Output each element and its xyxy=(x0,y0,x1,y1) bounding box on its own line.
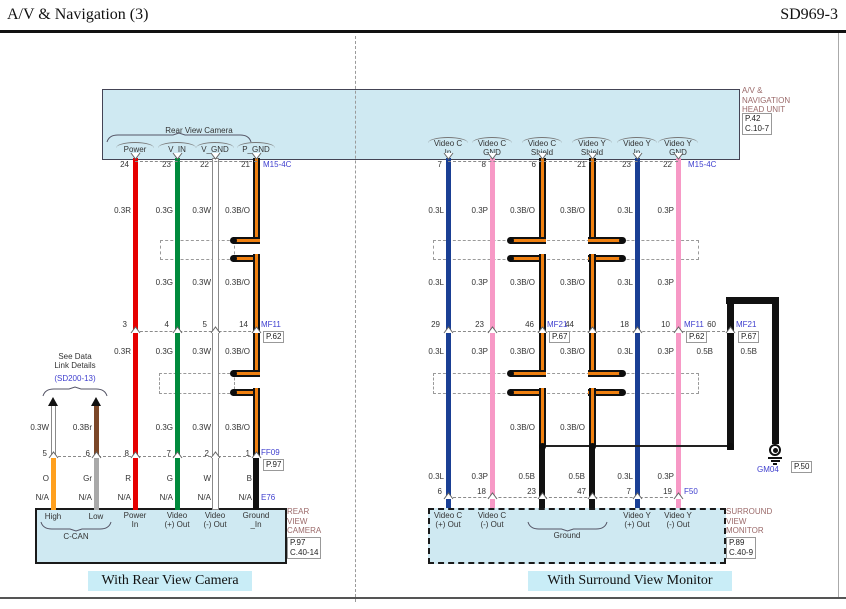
wire-size-label: 0.3B/O xyxy=(510,278,535,287)
connector-chevron-icon xyxy=(673,326,684,333)
data-link-brace xyxy=(42,387,108,397)
wire-size-label: 0.3P xyxy=(658,206,674,215)
connector-ref: P.97 xyxy=(263,459,284,471)
rear-camera-ref: P.97 C.40-14 xyxy=(287,537,321,559)
wire-size-label: 0.3L xyxy=(428,347,444,356)
ground-brace xyxy=(527,522,608,532)
shielded-wire xyxy=(510,370,546,377)
wire-color-label: B xyxy=(247,474,252,483)
wire-size-label: 0.3R xyxy=(114,347,131,356)
label-arc xyxy=(522,137,562,143)
camera-pin-label: High xyxy=(45,512,61,521)
can-high-wire-white xyxy=(51,404,56,458)
connector-chevron-icon xyxy=(632,492,643,499)
connector-chevron-icon xyxy=(487,492,498,499)
connector-name: M15-4C xyxy=(263,160,291,169)
connector-chevron-icon xyxy=(587,326,598,333)
junction-dot xyxy=(230,389,237,396)
wire-size-label: 0.3G xyxy=(156,347,173,356)
connector-name: MF21 xyxy=(547,320,567,329)
wire-size-label: 0.3W xyxy=(192,278,211,287)
connector-chevron-icon xyxy=(210,326,221,333)
label-arc xyxy=(237,142,275,148)
wire-color-label: O xyxy=(43,474,49,483)
label-arc xyxy=(617,137,657,143)
wire-size-label: 0.3B/O xyxy=(225,206,250,215)
connector-chevron-icon xyxy=(48,451,59,458)
pin-number: 5 xyxy=(203,320,207,329)
head-unit-ref: P.42 C.10-7 xyxy=(742,113,772,135)
pin-number: 60 xyxy=(707,320,716,329)
na-label: N/A xyxy=(239,493,252,502)
junction-dot xyxy=(727,443,734,450)
junction-dot xyxy=(507,389,514,396)
connector-name: M15-4C xyxy=(688,160,716,169)
ground-bus-right-leg xyxy=(772,297,779,444)
wire-color-label: G xyxy=(167,474,173,483)
pin-number: 7 xyxy=(438,160,442,169)
camera-pin-label: Power In xyxy=(124,512,147,529)
pin-number: 3 xyxy=(123,320,127,329)
camera-pin-label: Video (-) Out xyxy=(203,512,226,529)
wire-size-label: 0.3L xyxy=(428,472,444,481)
connector-chevron-icon xyxy=(210,451,221,458)
shielded-wire xyxy=(253,388,260,458)
connector-chevron-icon xyxy=(537,492,548,499)
junction-dot xyxy=(619,389,626,396)
pin-number: 46 xyxy=(525,320,534,329)
junction-dot xyxy=(230,255,237,262)
connector-chevron-icon xyxy=(443,492,454,499)
junction-dot xyxy=(230,370,237,377)
wire-size-label: 0.3G xyxy=(156,423,173,432)
connector-chevron-icon xyxy=(172,451,183,458)
wire-size-label: 0.3L xyxy=(617,206,633,215)
wire-size-label: 0.3G xyxy=(156,206,173,215)
junction-dot xyxy=(619,255,626,262)
pin-number: 23 xyxy=(527,487,536,496)
label-arc xyxy=(472,137,512,143)
wire-size-label: 0.3P xyxy=(472,347,488,356)
connector-chevron-icon xyxy=(130,153,141,160)
shield-junction-box xyxy=(433,373,699,394)
label-arc xyxy=(658,137,698,143)
connector-name: MF11 xyxy=(261,320,281,329)
connector-chevron-icon xyxy=(443,326,454,333)
wire-size-label: 0.3G xyxy=(156,278,173,287)
wire-size-label: 0.3B/O xyxy=(560,423,585,432)
wire-size-label: 0.5B xyxy=(569,472,585,481)
connector-chevron-icon xyxy=(172,153,183,160)
caption-right: With Surround View Monitor xyxy=(528,571,732,591)
connector-dash-line xyxy=(448,161,678,162)
shielded-wire xyxy=(233,370,260,377)
pin-number: 23 xyxy=(475,320,484,329)
connector-chevron-icon xyxy=(587,153,598,160)
connector-chevron-icon xyxy=(632,326,643,333)
wire-size-label: 0.3P xyxy=(472,278,488,287)
shielded-wire xyxy=(539,254,546,377)
label-arc xyxy=(158,142,196,148)
connector-chevron-icon xyxy=(487,326,498,333)
connector-chevron-icon xyxy=(673,153,684,160)
wire-size-label: 0.3P xyxy=(472,206,488,215)
pin-number: 10 xyxy=(661,320,670,329)
label-arc xyxy=(572,137,612,143)
monitor-pin-label: Video C (-) Out xyxy=(478,512,506,529)
wire-size-label: 0.3B/O xyxy=(225,278,250,287)
pin-number: 24 xyxy=(120,160,129,169)
can-low-wire-gray xyxy=(94,458,99,510)
connector-chevron-icon xyxy=(251,326,262,333)
shielded-wire xyxy=(589,388,596,447)
connector-dash-line xyxy=(448,497,678,498)
label-arc xyxy=(116,142,154,148)
c-can-brace xyxy=(40,522,112,532)
connector-chevron-icon xyxy=(537,153,548,160)
camera-pin-label: Low xyxy=(89,512,104,521)
shielded-wire xyxy=(539,158,546,244)
data-link-note: See Data Link Details xyxy=(54,352,95,370)
na-label: N/A xyxy=(118,493,131,502)
connector-chevron-icon xyxy=(172,326,183,333)
wire-size-label: 0.3Br xyxy=(73,423,92,432)
wire-size-label: 0.3B/O xyxy=(510,347,535,356)
ground-symbol-dot xyxy=(773,448,778,453)
monitor-pin-label: Video Y (+) Out xyxy=(623,512,651,529)
shield-junction-box xyxy=(433,240,699,260)
wire-color-label: W xyxy=(203,474,211,483)
connector-chevron-icon xyxy=(251,153,262,160)
pin-number: 18 xyxy=(620,320,629,329)
wire-size-label: 0.3L xyxy=(617,278,633,287)
wire-size-label: 0.3P xyxy=(658,278,674,287)
ground-bus-left-leg xyxy=(727,297,734,450)
pin-number: 14 xyxy=(239,320,248,329)
wire-size-label: 0.3W xyxy=(192,347,211,356)
wire-size-label: 0.3B/O xyxy=(560,347,585,356)
wire-size-label: 0.3B/O xyxy=(510,423,535,432)
wire-size-label: 0.3W xyxy=(30,423,49,432)
arrow-up-icon xyxy=(91,397,101,406)
pin-number: 19 xyxy=(663,487,672,496)
ground-stroke xyxy=(773,463,777,465)
ground-ref: P.50 xyxy=(791,461,812,473)
shielded-wire xyxy=(589,158,596,244)
junction-dot xyxy=(230,237,237,244)
junction-dot xyxy=(539,443,546,450)
wire-color-label: R xyxy=(125,474,131,483)
shielded-wire xyxy=(589,254,596,377)
shielded-wire xyxy=(539,388,546,447)
shield-junction-box xyxy=(159,373,235,394)
wire-size-label: 0.3P xyxy=(658,347,674,356)
wire-size-label: 0.5B xyxy=(519,472,535,481)
pin-number: 5 xyxy=(43,449,47,458)
wire-size-label: 0.3L xyxy=(428,206,444,215)
wire-size-label: 0.5B xyxy=(697,347,713,356)
connector-name: F50 xyxy=(684,487,698,496)
can-low-wire-brown xyxy=(94,404,99,458)
wire-size-label: 0.3B/O xyxy=(225,347,250,356)
pin-number: 47 xyxy=(577,487,586,496)
connector-dash-line xyxy=(135,161,257,162)
connector-chevron-icon xyxy=(130,326,141,333)
connector-name: FF09 xyxy=(261,448,280,457)
connector-dash-line xyxy=(53,456,256,457)
diagram-canvas: A/V & NAVIGATION HEAD UNITP.42 C.10-7Rea… xyxy=(0,0,846,609)
shielded-wire xyxy=(253,158,260,244)
connector-chevron-icon xyxy=(251,451,262,458)
connector-name: E76 xyxy=(261,493,275,502)
wire-size-label: 0.3L xyxy=(617,347,633,356)
surround-monitor-label: SURROUND VIEW MONITOR xyxy=(726,507,772,536)
ground-group-label: Ground xyxy=(554,531,581,540)
wire-size-label: 0.5B xyxy=(741,347,757,356)
shielded-wire xyxy=(510,237,546,244)
wire-size-label: 0.3B/O xyxy=(510,206,535,215)
wiring-diagram-page: A/V & Navigation (3) SD969-3 A/V & NAVIG… xyxy=(0,0,846,609)
connector-chevron-icon xyxy=(487,153,498,160)
wire-size-label: 0.3B/O xyxy=(560,206,585,215)
connector-chevron-icon xyxy=(130,451,141,458)
ground-stroke xyxy=(768,457,782,459)
connector-chevron-icon xyxy=(673,492,684,499)
connector-chevron-icon xyxy=(632,153,643,160)
wire-size-label: 0.3L xyxy=(617,472,633,481)
connector-dash-line xyxy=(135,331,256,332)
data-link-ref: (SD200-13) xyxy=(54,374,95,383)
junction-dot xyxy=(619,370,626,377)
shielded-wire xyxy=(588,370,622,377)
surround-monitor-ref: P.89 C.40-9 xyxy=(726,537,756,559)
connector-chevron-icon xyxy=(443,153,454,160)
shielded-wire xyxy=(233,237,260,244)
ground-name: GM04 xyxy=(757,465,779,474)
connector-ref: P.67 xyxy=(738,331,759,343)
label-arc xyxy=(196,142,234,148)
connector-chevron-icon xyxy=(587,492,598,499)
can-high-wire-orange xyxy=(51,458,56,510)
connector-chevron-icon xyxy=(210,153,221,160)
pin-number: 18 xyxy=(477,487,486,496)
pin-number: 29 xyxy=(431,320,440,329)
section-divider xyxy=(355,36,356,602)
connector-name: MF11 xyxy=(684,320,704,329)
wire-size-label: 0.3B/O xyxy=(225,423,250,432)
junction-dot xyxy=(507,370,514,377)
connector-chevron-icon xyxy=(91,451,102,458)
c-can-label: C-CAN xyxy=(63,532,88,541)
rear-camera-label: REAR VIEW CAMERA xyxy=(287,507,321,536)
wire-size-label: 0.3L xyxy=(428,278,444,287)
connector-ref: P.62 xyxy=(263,331,284,343)
na-label: N/A xyxy=(198,493,211,502)
junction-dot xyxy=(507,237,514,244)
shield-ground-tie xyxy=(542,445,731,447)
pin-number: 6 xyxy=(438,487,442,496)
shield-junction-box xyxy=(160,240,235,260)
pin-number: 4 xyxy=(165,320,169,329)
label-arc xyxy=(428,137,468,143)
junction-dot xyxy=(589,443,596,450)
arrow-up-icon xyxy=(48,397,58,406)
wire-size-label: 0.3P xyxy=(658,472,674,481)
wire-size-label: 0.3W xyxy=(192,423,211,432)
wire-size-label: 0.3W xyxy=(192,206,211,215)
junction-dot xyxy=(619,237,626,244)
head-unit-label: A/V & NAVIGATION HEAD UNIT xyxy=(742,86,790,115)
na-label: N/A xyxy=(79,493,92,502)
na-label: N/A xyxy=(36,493,49,502)
ground-stroke xyxy=(771,460,780,462)
wire-size-label: 0.3P xyxy=(472,472,488,481)
wire-size-label: 0.3B/O xyxy=(560,278,585,287)
caption-left: With Rear View Camera xyxy=(88,571,252,591)
junction-dot xyxy=(507,255,514,262)
monitor-pin-label: Video C (+) Out xyxy=(434,512,462,529)
wire-size-label: 0.3R xyxy=(114,206,131,215)
camera-pin-label: Video (+) Out xyxy=(164,512,189,529)
shielded-wire xyxy=(588,237,622,244)
connector-chevron-icon xyxy=(725,326,736,333)
monitor-pin-label: Video Y (-) Out xyxy=(664,512,692,529)
connector-ref: P.62 xyxy=(686,331,707,343)
connector-name: MF21 xyxy=(736,320,756,329)
na-label: N/A xyxy=(160,493,173,502)
ground-wire-black xyxy=(253,455,259,510)
camera-pin-label: Ground _In xyxy=(243,512,270,529)
connector-chevron-icon xyxy=(537,326,548,333)
pin-number: 7 xyxy=(627,487,631,496)
shielded-wire xyxy=(253,254,260,377)
wire-color-label: Gr xyxy=(83,474,92,483)
connector-ref: P.67 xyxy=(549,331,570,343)
